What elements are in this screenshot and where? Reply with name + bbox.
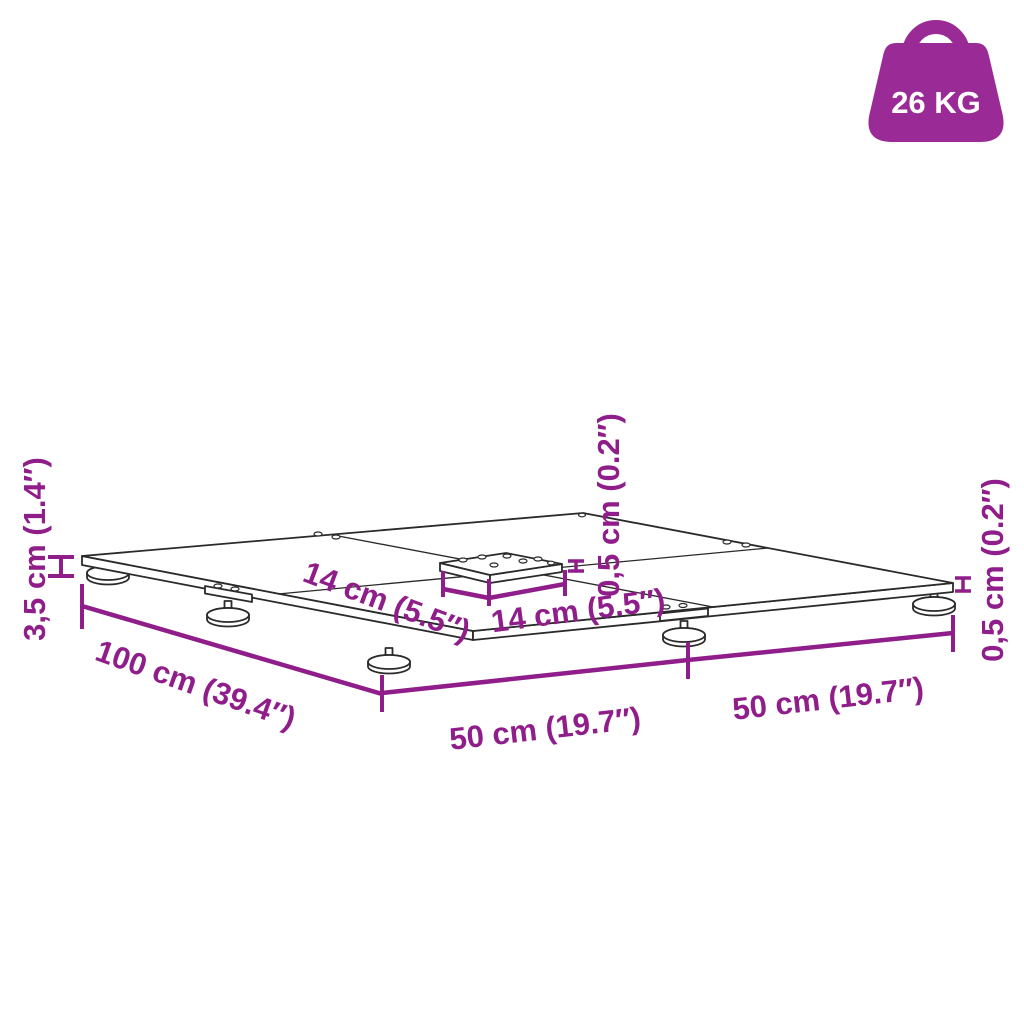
- product-dimension-image: 3,5 cm (1.4″) 100 cm (39.4″) 50 cm (19.7…: [0, 0, 1024, 1024]
- label-thickness-corner: 0,5 cm (0.2″): [975, 478, 1010, 662]
- label-side-length-100cm: 100 cm (39.4″): [91, 633, 300, 736]
- label-front-right-50cm: 50 cm (19.7″): [731, 670, 926, 727]
- weight-badge: 26 KG: [868, 27, 1003, 142]
- adjustable-foot-joint-right: [663, 621, 705, 647]
- label-front-left-50cm: 50 cm (19.7″): [448, 700, 643, 757]
- label-total-height: 3,5 cm (1.4″): [17, 457, 52, 641]
- thickness-marker-corner: [955, 578, 971, 591]
- adjustable-foot-joint-left: [207, 601, 249, 627]
- dimension-diagram-canvas: 3,5 cm (1.4″) 100 cm (39.4″) 50 cm (19.7…: [0, 0, 1024, 1024]
- weight-badge-value: 26 KG: [891, 85, 981, 120]
- label-thickness-center: 0,5 cm (0.2″): [591, 413, 626, 597]
- adjustable-foot-front-corner: [368, 648, 410, 674]
